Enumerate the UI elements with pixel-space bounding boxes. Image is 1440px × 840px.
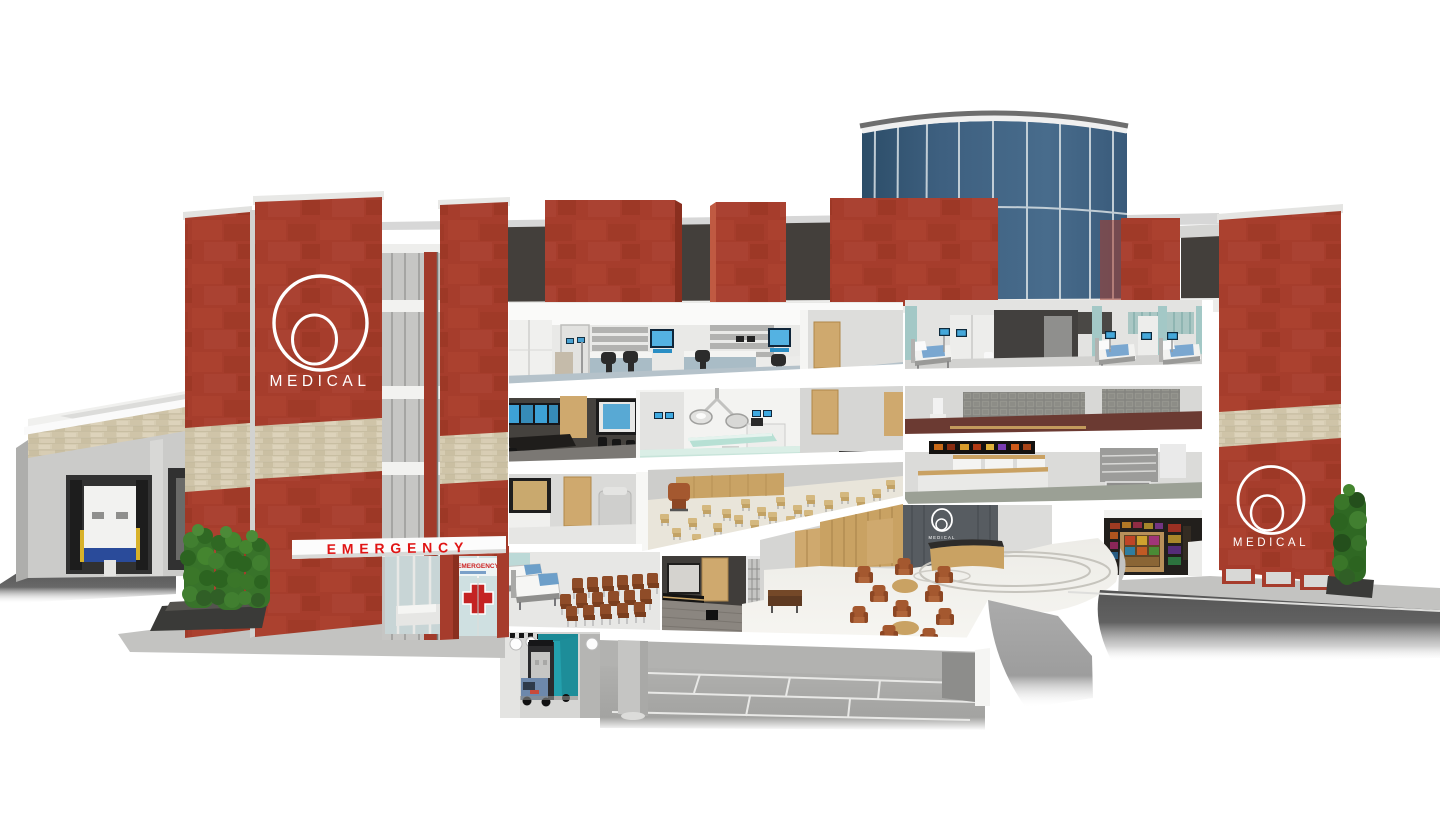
svg-text:EMERGENCY: EMERGENCY [327,539,470,557]
svg-text:MEDICAL: MEDICAL [269,373,370,390]
svg-text:MEDICAL: MEDICAL [1233,537,1309,549]
svg-text:EMERGENCY: EMERGENCY [457,563,500,570]
svg-text:MEDICAL: MEDICAL [928,535,955,540]
